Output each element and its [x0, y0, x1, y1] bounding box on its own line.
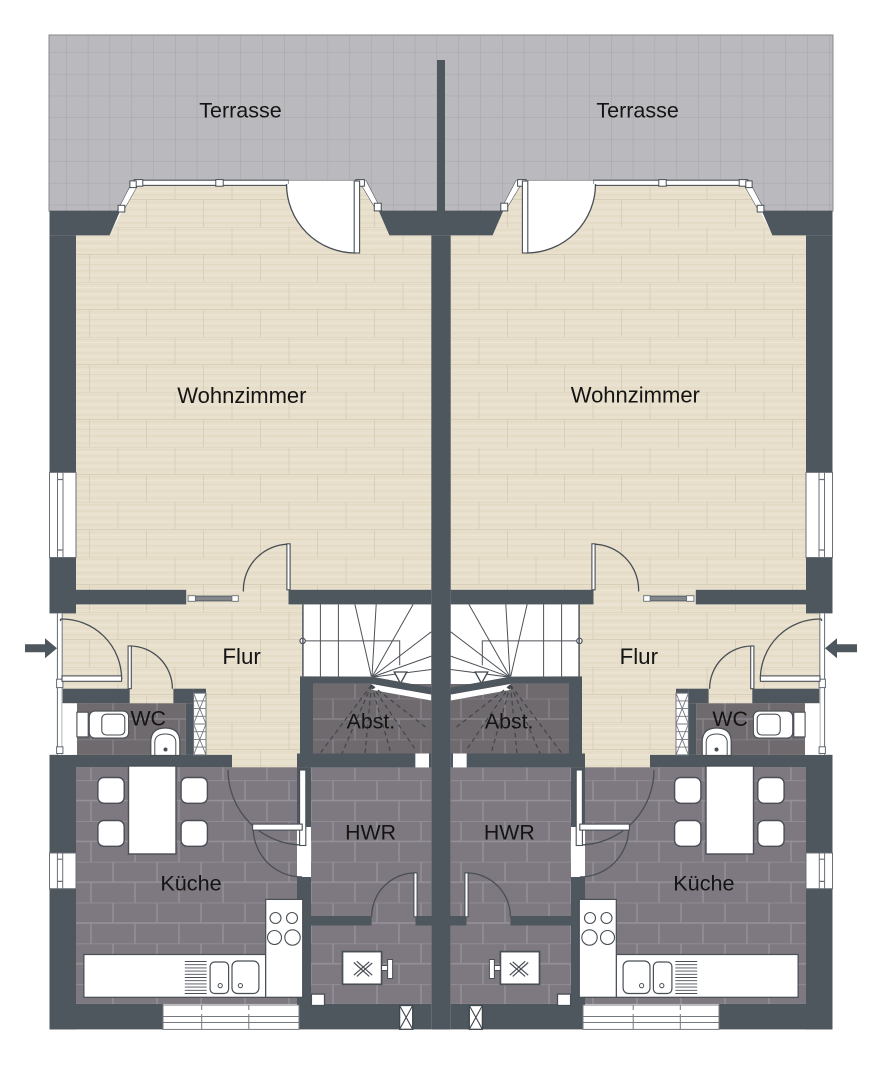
svg-text:Küche: Küche	[160, 871, 221, 896]
svg-text:WC: WC	[712, 707, 747, 731]
svg-text:HWR: HWR	[484, 821, 535, 845]
svg-text:Wohnzimmer: Wohnzimmer	[177, 383, 306, 408]
svg-text:Abst.: Abst.	[347, 710, 396, 734]
svg-text:Abst.: Abst.	[485, 710, 534, 734]
svg-text:Flur: Flur	[620, 644, 659, 669]
svg-text:WC: WC	[130, 706, 165, 730]
svg-text:Wohnzimmer: Wohnzimmer	[571, 383, 700, 408]
svg-text:Terrasse: Terrasse	[596, 99, 678, 123]
svg-text:Flur: Flur	[222, 644, 261, 669]
svg-text:HWR: HWR	[345, 821, 396, 845]
svg-text:Terrasse: Terrasse	[199, 99, 281, 123]
svg-text:Küche: Küche	[673, 871, 734, 896]
